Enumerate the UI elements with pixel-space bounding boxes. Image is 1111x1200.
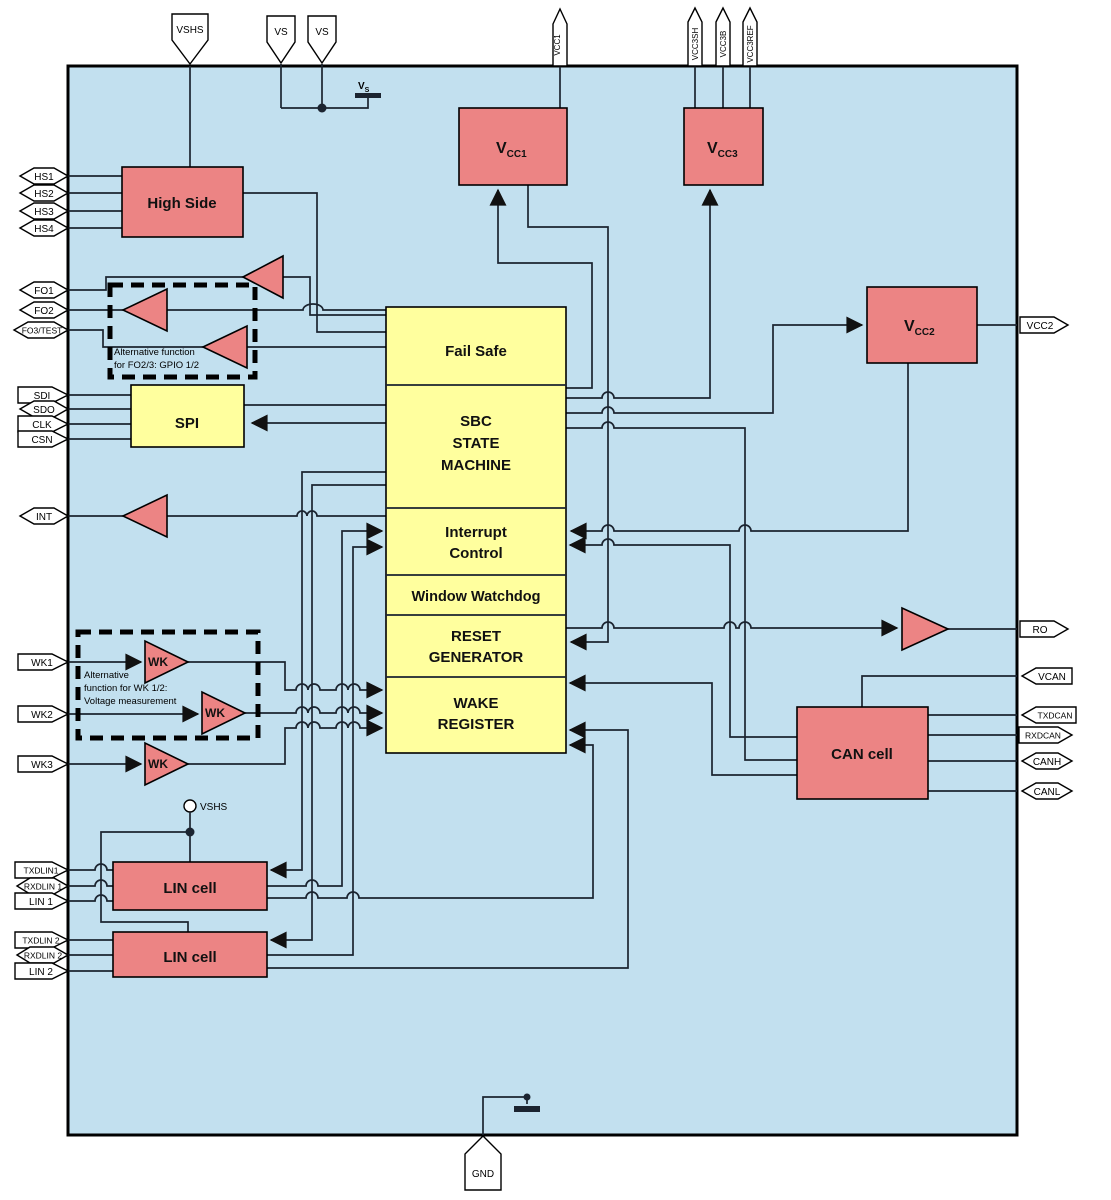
pin-int-label: INT <box>36 512 52 523</box>
spi-label: SPI <box>175 415 199 432</box>
pin-vs-1-label: VS <box>274 27 288 38</box>
pin-gnd-label: GND <box>472 1169 494 1180</box>
pin-fo2-label: FO2 <box>34 306 54 317</box>
watchdog-label: Window Watchdog <box>412 589 541 605</box>
wk-note-1: Alternative <box>84 670 129 681</box>
pin-hs4-label: HS4 <box>34 224 54 235</box>
pin-rxdlin2-label: RXDLIN 2 <box>24 951 63 961</box>
pin-vcc3sh-label: VCC3SH <box>691 28 700 61</box>
lin-cell-2-label: LIN cell <box>163 949 216 966</box>
vcc2-block <box>867 287 977 363</box>
vshs-terminal-icon <box>184 800 196 812</box>
sbc-label-1: SBC <box>460 413 492 430</box>
reset-label-1: RESET <box>451 628 501 645</box>
pin-vcan-label: VCAN <box>1038 672 1066 683</box>
vcc3-block <box>684 108 763 185</box>
fail-safe-label: Fail Safe <box>445 343 507 360</box>
pin-hs2-label: HS2 <box>34 189 54 200</box>
wk3-label: WK <box>148 757 168 771</box>
pin-vcc2-label: VCC2 <box>1027 321 1054 332</box>
wk1-label: WK <box>148 655 168 669</box>
pin-fo1-label: FO1 <box>34 286 54 297</box>
wk-note-2: function for WK 1/2: <box>84 683 167 694</box>
pin-clk-label: CLK <box>32 420 52 431</box>
interrupt-label-2: Control <box>449 545 502 562</box>
pin-vs-2-label: VS <box>315 27 329 38</box>
pin-fo3-test-label: FO3/TEST <box>22 326 63 336</box>
lin-cell-1-label: LIN cell <box>163 880 216 897</box>
pin-vs-1 <box>267 16 295 63</box>
ground-bar-icon <box>514 1106 540 1112</box>
high-side-label: High Side <box>147 195 216 212</box>
pin-csn-label: CSN <box>31 435 52 446</box>
sbc-label-3: MACHINE <box>441 457 511 474</box>
interrupt-label-1: Interrupt <box>445 524 507 541</box>
pin-vs-2 <box>308 16 336 63</box>
pin-wk3-label: WK3 <box>31 760 53 771</box>
pin-lin2-label: LIN 2 <box>29 967 53 978</box>
pin-wk2-label: WK2 <box>31 710 53 721</box>
pin-txdlin1-label: TXDLIN1 <box>24 866 59 876</box>
pin-sdo-label: SDO <box>33 405 55 416</box>
pin-gnd <box>465 1136 501 1190</box>
pin-vcc3ref-label: VCC3REF <box>746 25 755 62</box>
pin-hs1-label: HS1 <box>34 172 54 183</box>
pin-ro-label: RO <box>1033 625 1048 636</box>
sbc-label-2: STATE <box>453 435 500 452</box>
pin-vcc3b-label: VCC3B <box>719 31 728 58</box>
pin-vshs <box>172 14 208 64</box>
gpio-note-2: for FO2/3: GPIO 1/2 <box>114 360 199 371</box>
pin-lin1-label: LIN 1 <box>29 897 53 908</box>
wake-label-2: REGISTER <box>438 716 515 733</box>
pin-vshs-label: VSHS <box>176 25 204 36</box>
pin-txdcan-label: TXDCAN <box>1038 711 1073 721</box>
gpio-note-1: Alternative function <box>114 347 195 358</box>
wake-label-1: WAKE <box>454 695 499 712</box>
pin-canh-label: CANH <box>1033 757 1061 768</box>
can-cell-label: CAN cell <box>831 746 893 763</box>
sbc-block-diagram: High Side SPI Fail Safe SBC STATE MACHIN… <box>0 0 1111 1200</box>
pin-wk1-label: WK1 <box>31 658 53 669</box>
pin-vcc1-label: VCC1 <box>553 34 562 56</box>
wk-note-3: Voltage measurement <box>84 696 177 707</box>
reset-label-2: GENERATOR <box>429 649 524 666</box>
pin-rxdcan-label: RXDCAN <box>1025 731 1061 741</box>
pin-canl-label: CANL <box>1034 787 1061 798</box>
vcc1-block <box>459 108 567 185</box>
vshs-node-label: VSHS <box>200 802 228 813</box>
pin-rxdlin1-label: RXDLIN 1 <box>24 882 63 892</box>
pin-hs3-label: HS3 <box>34 207 54 218</box>
diagram-canvas: High Side SPI Fail Safe SBC STATE MACHIN… <box>0 0 1111 1200</box>
pin-txdlin2-label: TXDLIN 2 <box>22 936 60 946</box>
wk2-label: WK <box>205 706 225 720</box>
